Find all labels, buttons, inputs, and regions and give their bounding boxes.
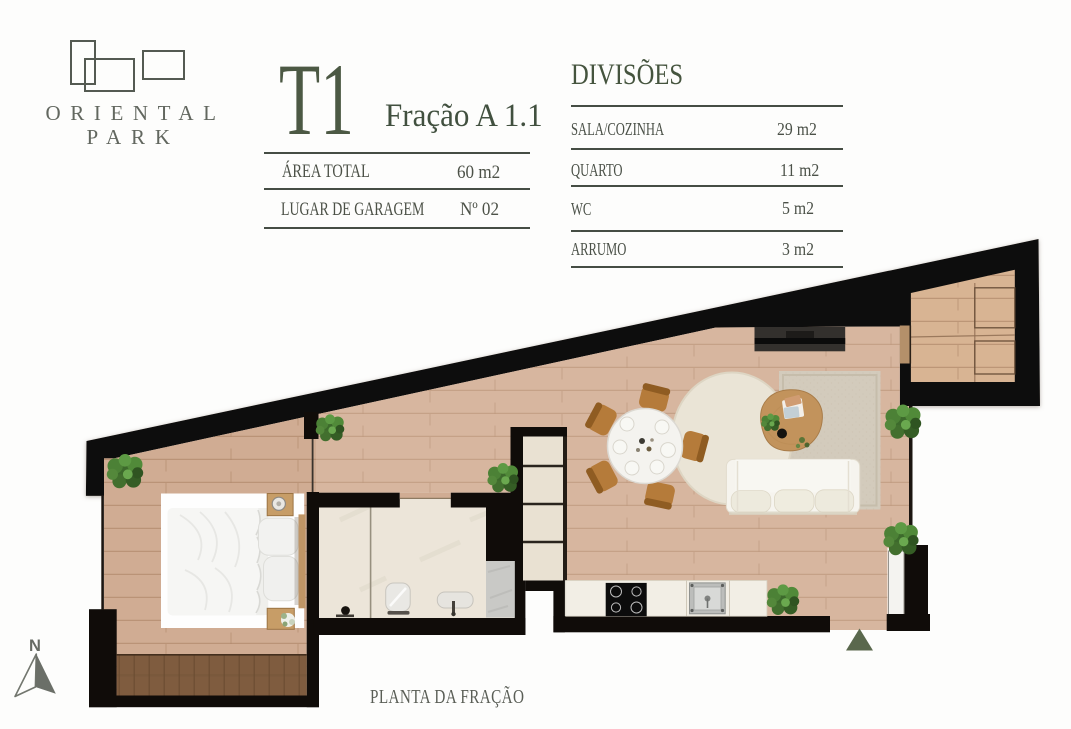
svg-text:N: N xyxy=(29,637,41,655)
